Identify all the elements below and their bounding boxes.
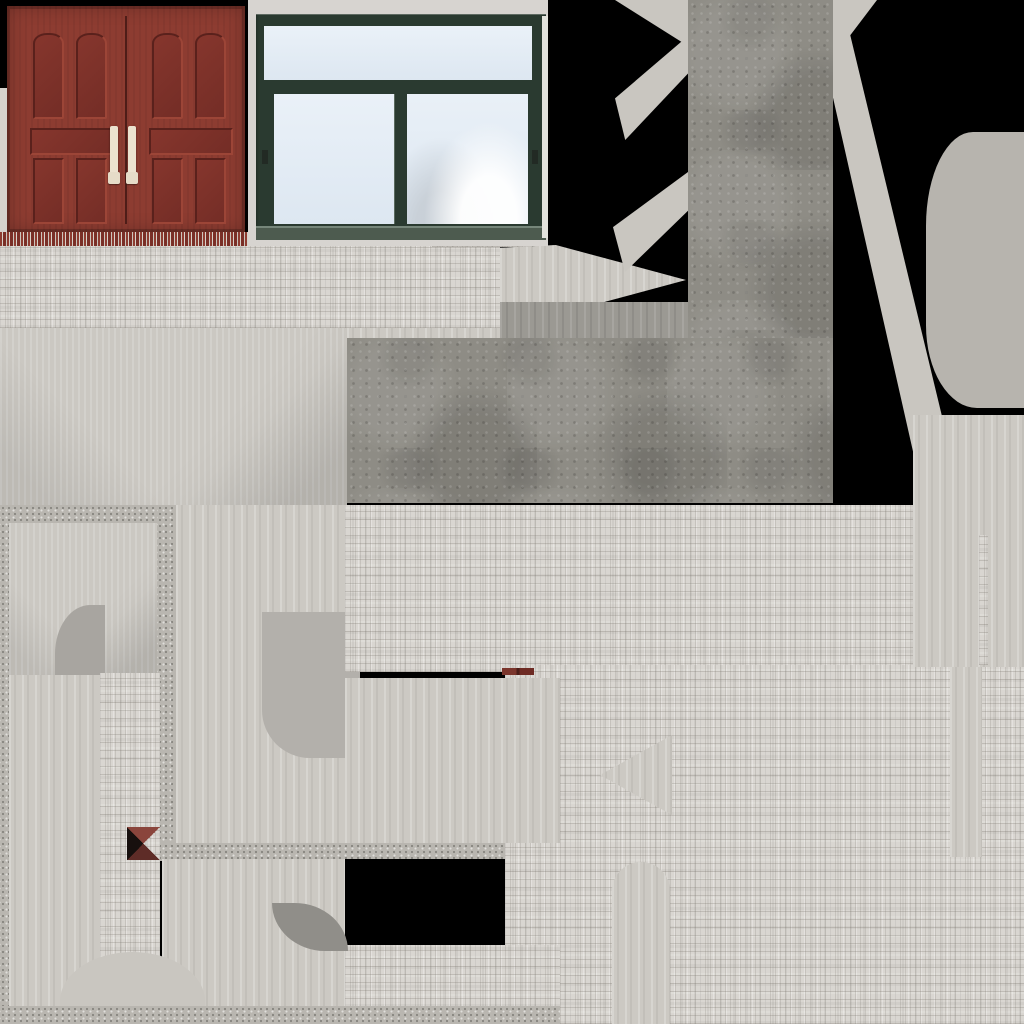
brick-band-top: [0, 245, 500, 328]
door-handle-plate-left: [108, 172, 120, 184]
pad-column-bottom-right: [950, 667, 982, 857]
door-panel-8: [76, 158, 107, 224]
door-panel-5: [30, 128, 114, 155]
shape-arch: [612, 862, 670, 1024]
door-center-stile: [117, 16, 135, 224]
pad-dark-strip: [500, 302, 690, 338]
pad-right-column: [913, 415, 1024, 667]
window-latch-left: [262, 150, 268, 164]
granite-bottom-strip: [0, 1006, 560, 1024]
blob-right: [926, 132, 1024, 408]
door-texture: [0, 0, 248, 246]
texture-atlas-canvas: [0, 0, 1024, 1024]
granite-left-column: [0, 505, 9, 1024]
door-panel-10: [195, 158, 226, 224]
door-panel-2: [76, 33, 107, 119]
door-handle-plate-right: [126, 172, 138, 184]
door-panel-3: [152, 33, 183, 119]
window-right-edge-highlight: [542, 16, 548, 238]
door-handle-left: [110, 126, 118, 178]
brick-sliver-right: [979, 535, 988, 665]
pad-diag-left-lower: [613, 170, 688, 272]
window-sill: [256, 226, 546, 240]
door-left-padding: [0, 88, 7, 234]
concrete-block: [347, 338, 833, 503]
granite-mid-strip: [157, 843, 535, 859]
door-panel-4: [195, 33, 226, 119]
door-panel-9: [152, 158, 183, 224]
window-right-pane: [406, 94, 528, 224]
marker-red-dash: [502, 668, 534, 675]
door-panel-6: [149, 128, 233, 155]
pad-diag-left-upper: [615, 36, 688, 140]
window-sash-divider: [394, 94, 407, 224]
window-transom-glass: [264, 26, 532, 80]
pad-left-column: [9, 675, 100, 1006]
pad-fan-below-band: [0, 328, 347, 505]
brick-band-bottom: [345, 945, 560, 1007]
pad-below-mid: [345, 678, 560, 843]
brick-bottom-right: [505, 665, 1024, 1024]
marker-bowtie: [127, 827, 160, 860]
door-bottom-fringe: [0, 232, 248, 246]
door-handle-right: [128, 126, 136, 178]
granite-top-strip: [0, 505, 168, 523]
door-panel-7: [33, 158, 64, 224]
window-texture: [248, 0, 548, 246]
pad-wedge-top-left: [615, 0, 688, 46]
door-face: [7, 6, 245, 232]
door-panel-1: [33, 33, 64, 119]
window-latch-right: [532, 150, 538, 164]
window-left-pane: [274, 94, 394, 224]
brick-band-mid: [345, 505, 913, 672]
